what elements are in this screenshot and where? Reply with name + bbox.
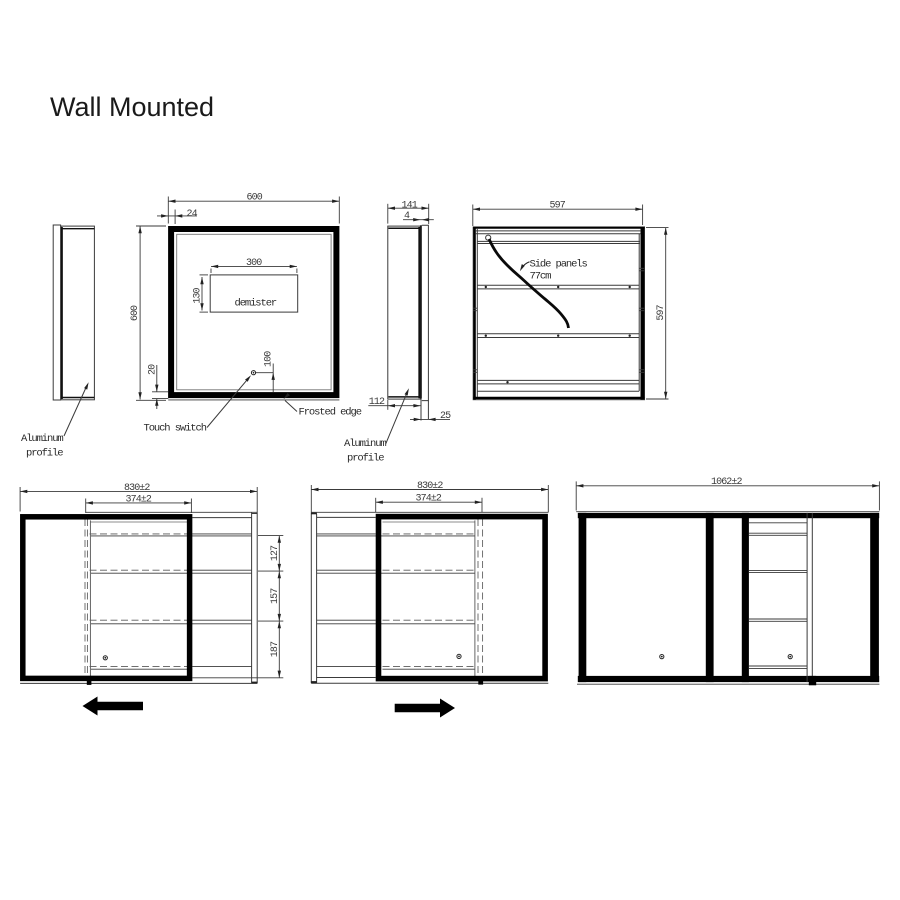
svg-text:130: 130 [193,287,204,303]
svg-text:597: 597 [550,201,566,212]
svg-text:Aluminum: Aluminum [21,433,63,445]
svg-text:374±2: 374±2 [416,494,442,505]
svg-text:141: 141 [402,200,418,211]
svg-text:300: 300 [246,258,262,269]
svg-text:112: 112 [369,397,385,408]
svg-text:24: 24 [187,209,198,220]
svg-text:profile: profile [347,453,384,465]
svg-text:profile: profile [26,448,63,460]
svg-text:600: 600 [130,305,141,321]
svg-text:374±2: 374±2 [126,494,152,505]
svg-text:157: 157 [270,588,281,604]
svg-text:4: 4 [404,211,410,222]
svg-text:830±2: 830±2 [124,483,150,494]
svg-text:Frosted edge: Frosted edge [299,407,362,419]
svg-text:Side panels: Side panels [530,258,588,270]
svg-text:20: 20 [148,364,159,375]
svg-text:830±2: 830±2 [417,481,443,492]
svg-text:127: 127 [270,545,281,561]
svg-text:Wall Mounted: Wall Mounted [50,92,214,122]
svg-text:Touch switch: Touch switch [144,423,207,435]
svg-text:600: 600 [247,193,263,204]
svg-text:100: 100 [264,351,275,367]
svg-text:25: 25 [440,411,451,422]
svg-text:187: 187 [270,641,281,657]
svg-text:77cm: 77cm [530,271,552,283]
svg-text:Aluminum: Aluminum [344,438,386,450]
svg-text:597: 597 [656,304,667,320]
svg-text:1062±2: 1062±2 [711,477,743,488]
svg-text:demister: demister [235,297,277,309]
